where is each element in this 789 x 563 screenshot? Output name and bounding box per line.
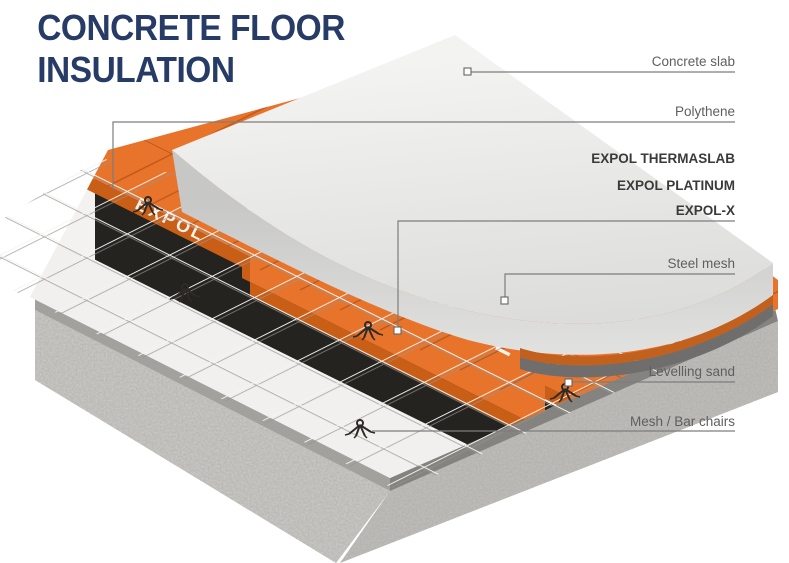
- callout-concrete-slab: Concrete slab: [464, 54, 735, 75]
- title-line-2: INSULATION: [37, 51, 234, 90]
- label-polythene: Polythene: [675, 104, 735, 119]
- label-levelling-sand: Levelling sand: [649, 364, 735, 379]
- label-expol-platinum: EXPOL PLATINUM: [617, 178, 735, 193]
- page-title: CONCRETE FLOOR INSULATION: [37, 9, 345, 90]
- title-line-1: CONCRETE FLOOR: [37, 9, 345, 48]
- label-mesh-bar-chairs: Mesh / Bar chairs: [630, 414, 735, 429]
- label-expol-x: EXPOL-X: [676, 203, 735, 218]
- concrete-floor-insulation-diagram: EXPOL EXPOL Concrete slab Polythene EXPO…: [0, 0, 789, 563]
- diagram-svg: EXPOL EXPOL Concrete slab Polythene EXPO…: [0, 0, 789, 563]
- label-concrete-slab: Concrete slab: [652, 54, 735, 69]
- label-expol-thermaslab: EXPOL THERMASLAB: [591, 151, 735, 166]
- label-steel-mesh: Steel mesh: [667, 256, 735, 271]
